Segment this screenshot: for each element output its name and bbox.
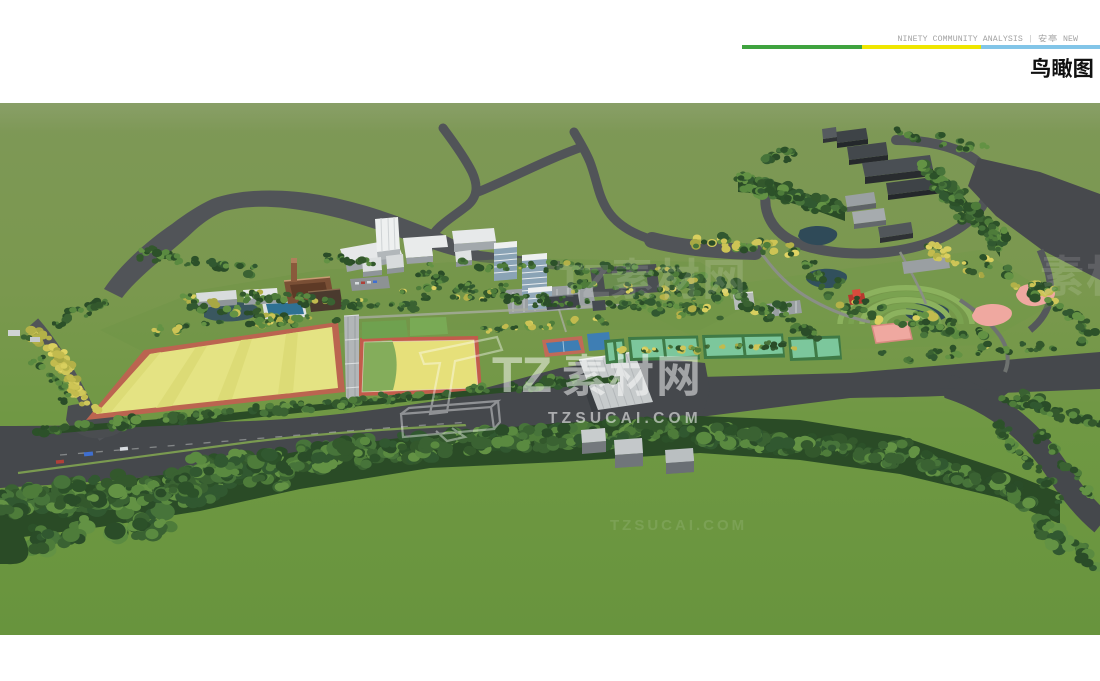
svg-text:TZ: TZ	[492, 347, 552, 403]
svg-text:TZSUCAI.COM: TZSUCAI.COM	[610, 517, 747, 534]
svg-text:TZSUCAI.COM: TZSUCAI.COM	[548, 410, 702, 427]
svg-text:TZ: TZ	[556, 255, 609, 307]
